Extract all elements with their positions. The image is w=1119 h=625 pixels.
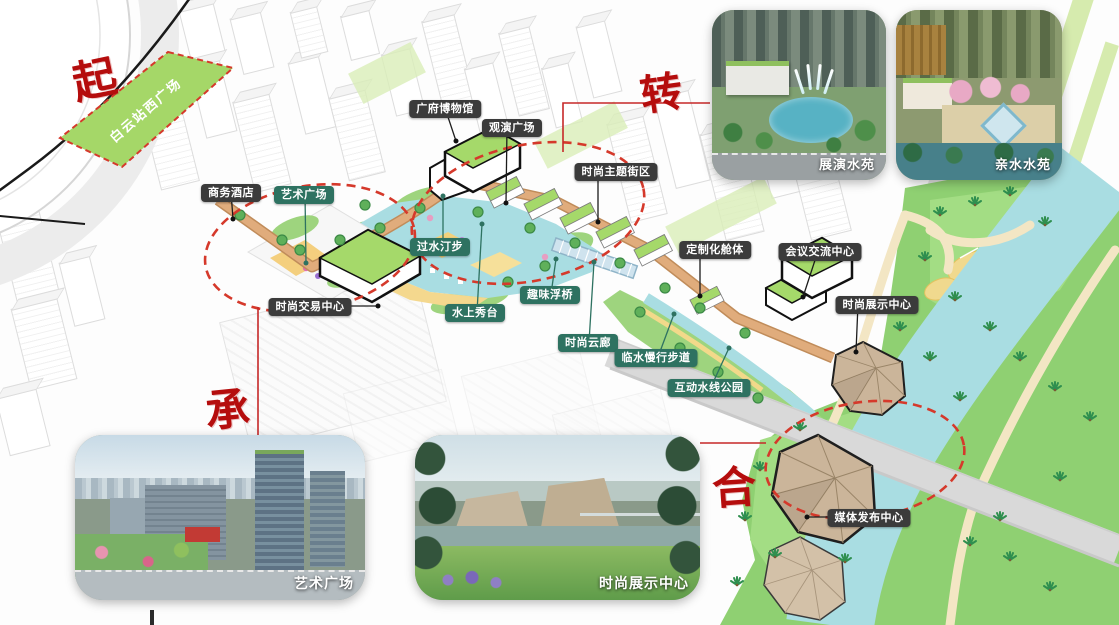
label-custom-pods: 定制化舱体	[679, 241, 751, 259]
inset-caption: 展演水苑	[819, 154, 875, 173]
bottom-mark	[150, 610, 154, 625]
glass-tower	[255, 450, 304, 573]
glass-tower	[310, 471, 345, 567]
label-conference-center: 会议交流中心	[779, 243, 862, 261]
green-roof-building	[726, 61, 789, 95]
inset-photo-exhibition-water-garden: 展演水苑	[712, 10, 886, 180]
label-fashion-theme-street: 时尚主题街区	[575, 163, 658, 181]
rendered-greenery	[712, 112, 886, 153]
inset-caption: 亲水水苑	[995, 154, 1051, 173]
sequence-mark-cheng: 承	[202, 372, 252, 440]
label-art-plaza: 艺术广场	[274, 186, 334, 204]
label-performance-plaza: 观演广场	[482, 119, 542, 137]
sequence-mark-zhuan: 转	[636, 57, 686, 123]
label-media-release-center: 媒体发布中心	[828, 509, 911, 527]
label-interactive-water-park: 互动水线公园	[668, 379, 751, 397]
inset-caption: 艺术广场	[294, 573, 354, 593]
sequence-mark-he: 合	[710, 451, 758, 518]
label-fashion-expo-center: 时尚展示中心	[836, 296, 919, 314]
label-stepping-stones: 过水汀步	[410, 238, 470, 256]
masterplan-diagram: 白云站西广场 起 转 承 合 商务酒店 广府博物馆 观演广场 时尚主题街区 时尚…	[0, 0, 1119, 625]
label-water-stage: 水上秀台	[445, 304, 505, 322]
inset-photo-fashion-expo-center: 时尚展示中心	[415, 435, 700, 600]
label-guangfu-museum: 广府博物馆	[409, 100, 481, 118]
amber-building	[896, 25, 946, 74]
foreground-trees	[415, 435, 463, 592]
inset-photo-art-plaza: 艺术广场	[75, 435, 365, 600]
label-fashion-cloud-gallery: 时尚云廊	[558, 334, 618, 352]
foreground-trees	[649, 435, 700, 592]
inset-photo-hydrophilic-water-garden: 亲水水苑	[896, 10, 1062, 180]
red-sign	[185, 527, 220, 542]
label-fashion-trade-center: 时尚交易中心	[269, 298, 352, 316]
label-waterfront-walkway: 临水慢行步道	[615, 349, 698, 367]
label-fun-floating-bridge: 趣味浮桥	[520, 286, 580, 304]
label-business-hotel: 商务酒店	[201, 184, 261, 202]
inset-caption: 时尚展示中心	[599, 573, 689, 593]
